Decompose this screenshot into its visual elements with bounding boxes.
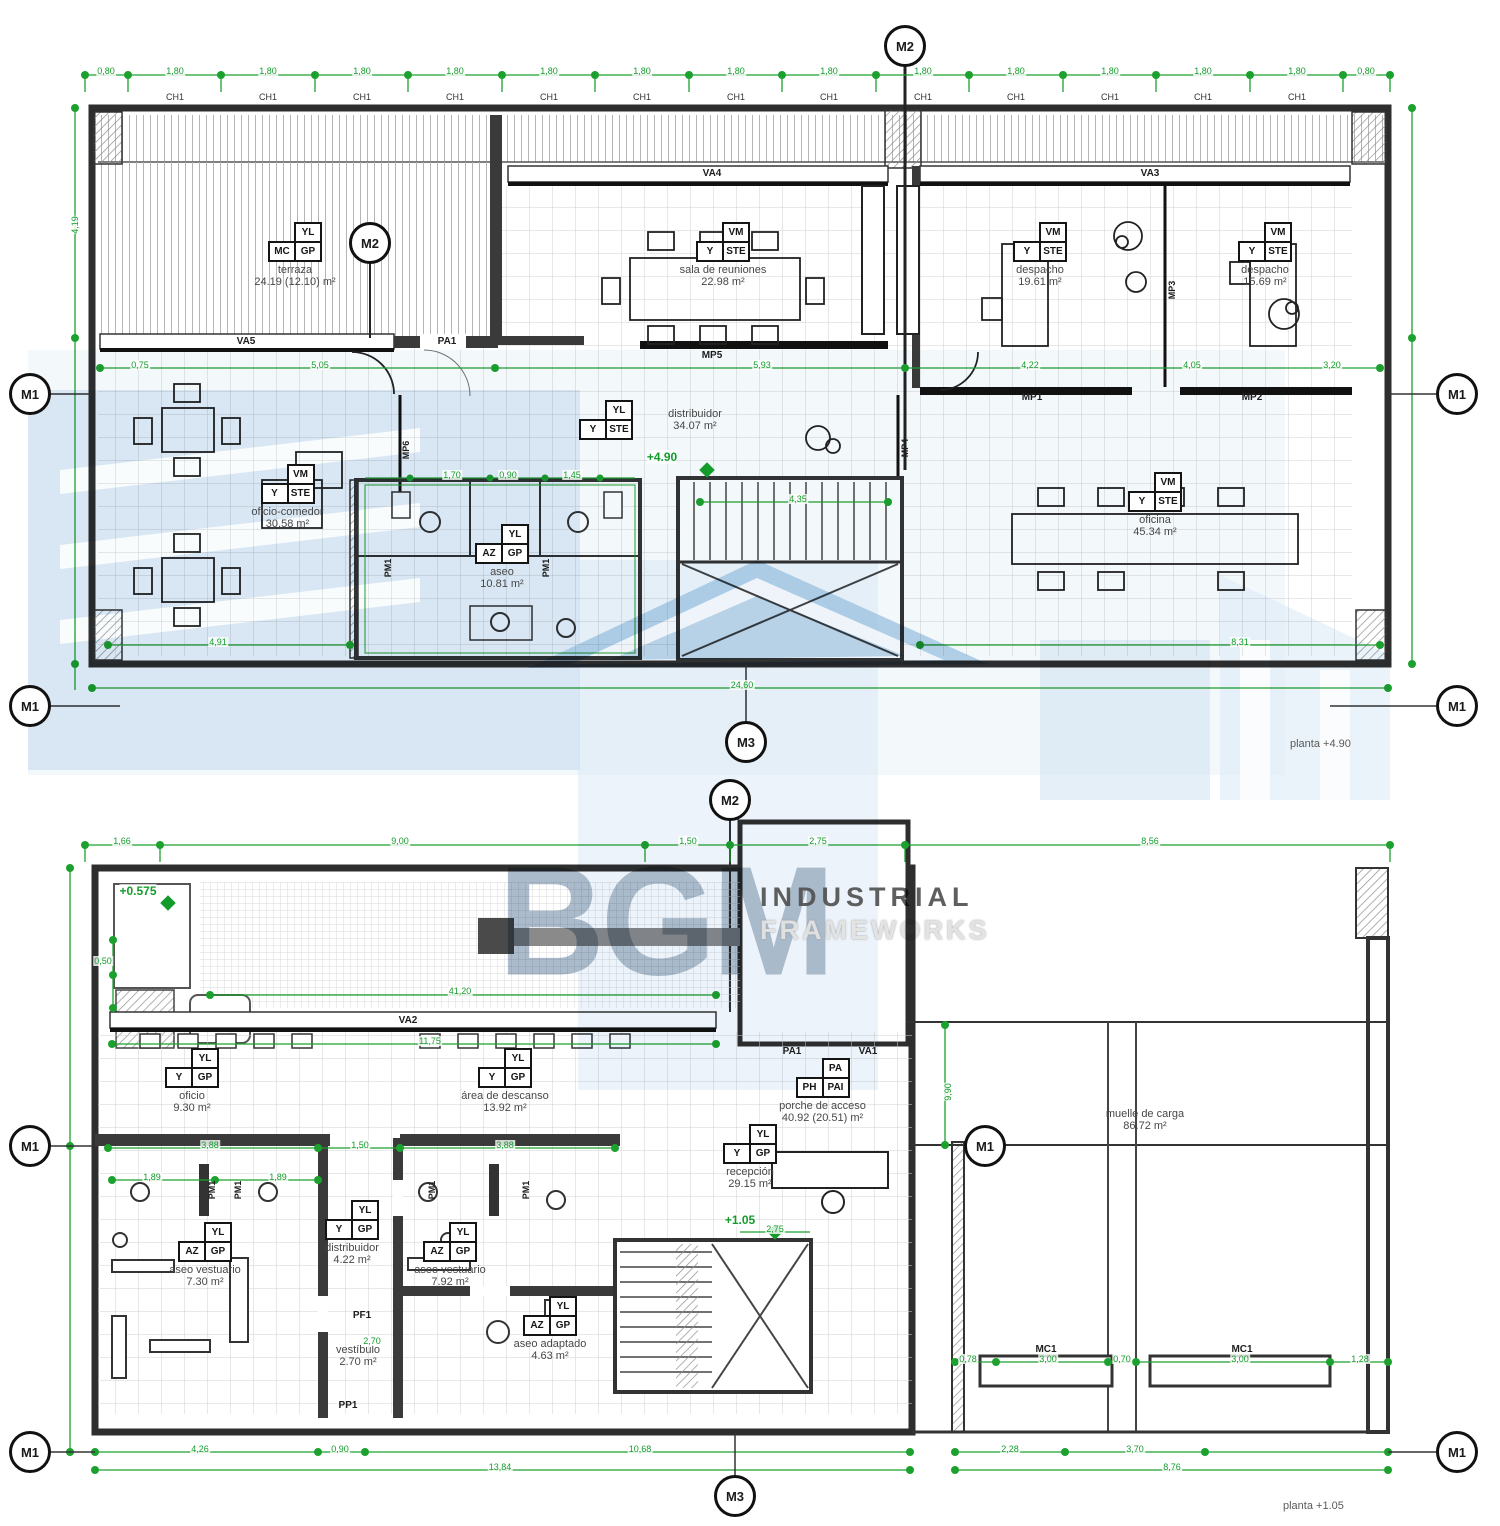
lintel-tag-ch1: CH1 [633,92,651,102]
grid-marker-m1: M1 [9,1431,51,1473]
finish-codes: YL AZ GP [475,524,529,564]
dimension-label: 1,50 [350,1140,370,1150]
window-tag-va1: VA1 [859,1046,878,1057]
finish-code: YL [504,1048,532,1069]
dimension-label: 4,35 [788,494,808,504]
finish-code: GP [501,543,529,564]
room-area: 30.58 m² [225,518,350,531]
finish-code: Y [165,1067,193,1088]
dimension-label: 2,28 [1000,1444,1020,1454]
dimension-label: 1,80 [1287,66,1307,76]
dimension-label: 9,00 [390,836,410,846]
level-marker-text: +0.575 [119,884,156,898]
finish-codes: VM Y STE [1013,222,1067,262]
window-band-va3 [920,166,1350,184]
room-name: despacho [985,264,1095,276]
finish-codes: YL AZ GP [178,1222,232,1262]
level-marker-text: +4.90 [647,450,677,464]
room-aseo: YL AZ GP aseo 10.81 m² [462,524,542,591]
room-name: vestíbulo [322,1344,394,1356]
grid-marker-m1: M1 [1436,685,1478,727]
room-distribuidor: distribuidor 34.07 m² [640,408,750,433]
finish-code: PAI [822,1077,850,1098]
partition-tag-mp1: MP1 [1022,392,1043,403]
room-area: 2.70 m² [322,1356,394,1369]
room-name: oficio-comedor [225,506,350,518]
room-area: 7.92 m² [395,1276,505,1289]
finish-code: AZ [523,1315,551,1336]
finish-code: Y [579,419,607,440]
finish-code: Y [325,1219,353,1240]
finish-code: STE [1039,241,1067,262]
finish-code: AZ [475,543,503,564]
finish-code: GP [549,1315,577,1336]
lintel-tag-ch1: CH1 [820,92,838,102]
door-tag-pm1: PM1 [383,559,393,578]
window-tag-va3: VA3 [1141,168,1160,179]
dimension-label: 8,56 [1140,836,1160,846]
room-area-de-descanso: YL Y GP área de descanso 13.92 m² [445,1048,565,1115]
door-tag-pa1: PA1 [783,1046,802,1057]
finish-code: YL [294,222,322,243]
grid-marker-m1: M1 [9,373,51,415]
dimension-label: 0,80 [1356,66,1376,76]
door-tag-pm1: PM1 [233,1181,243,1200]
lintel-tag-ch1: CH1 [353,92,371,102]
dimension-label: 3,88 [495,1140,515,1150]
window-band-va4 [508,166,888,184]
dimension-label: 0,80 [96,66,116,76]
room-area: 45.34 m² [1105,526,1205,539]
finish-codes: YL Y GP [325,1200,379,1240]
finish-code: STE [605,419,633,440]
door-tag-pa1: PA1 [438,336,457,347]
partition-tag-mp2: MP2 [1242,392,1263,403]
dimension-label: 1,80 [913,66,933,76]
door-tag-pf1: PF1 [353,1310,371,1321]
room-name: distribuidor [640,408,750,420]
dimension-label: 3,70 [1125,1444,1145,1454]
finish-codes: VM Y STE [1238,222,1292,262]
finish-code: GP [449,1241,477,1262]
room-name: distribuidor [312,1242,392,1254]
finish-code: Y [478,1067,506,1088]
room-area: 4.63 m² [495,1350,605,1363]
finish-code: YL [449,1222,477,1243]
door-tag-pm1: PM1 [427,1181,437,1200]
finish-code: Y [1013,241,1041,262]
finish-code: MC [268,241,296,262]
room-name: terraza [240,264,350,276]
grid-marker-m3: M3 [714,1475,756,1517]
finish-codes: YL Y STE [579,400,633,440]
dimension-label: 0,75 [130,360,150,370]
finish-code: YL [191,1048,219,1069]
room-name: aseo [462,566,542,578]
dimension-label: 1,50 [678,836,698,846]
room-aseo-adaptado: YL AZ GP aseo adaptado 4.63 m² [495,1296,605,1363]
dimension-label: 0,70 [1112,1354,1132,1364]
dimension-label: 3,00 [1230,1354,1250,1364]
room-name: área de descanso [445,1090,565,1102]
door-tag-pm1: PM1 [521,1181,531,1200]
grid-marker-m1: M1 [1436,1431,1478,1473]
room-aseo-vestuario-1: YL AZ GP aseo vestuario 7.30 m² [150,1222,260,1289]
grid-marker-m1: M1 [1436,373,1478,415]
dimension-label: 8,31 [1230,637,1250,647]
dimension-label: 5,05 [310,360,330,370]
upper-plan [48,64,1440,724]
room-name: porche de acceso [755,1100,890,1112]
dimension-label: 1,80 [726,66,746,76]
dimension-label: 0,90 [498,470,518,480]
room-area: 15.69 m² [1210,276,1320,289]
dimension-label: 1,89 [142,1172,162,1182]
finish-code: YL [501,524,529,545]
dimension-label: 1,80 [539,66,559,76]
finish-code: GP [749,1143,777,1164]
grid-marker-m1: M1 [9,685,51,727]
dimension-label: 2,75 [808,836,828,846]
room-terraza: YL MC GP terraza 24.19 (12.10) m² [240,222,350,289]
lintel-tag-ch1: CH1 [1194,92,1212,102]
finish-code: VM [1264,222,1292,243]
finish-code: PA [822,1058,850,1079]
room-area: 19.61 m² [985,276,1095,289]
room-aseo-vestuario-2: YL AZ GP aseo vestuario 7.92 m² [395,1222,505,1289]
room-oficio-comedor: VM Y STE oficio-comedor 30.58 m² [225,464,350,531]
room-oficio: YL Y GP oficio 9.30 m² [152,1048,232,1115]
dimension-label: 1,80 [632,66,652,76]
dimension-label: 10,68 [628,1444,653,1454]
dimension-label: 1,80 [1100,66,1120,76]
dimension-label: 9,90 [943,1083,953,1101]
dimension-label: 1,80 [445,66,465,76]
finish-code: AZ [423,1241,451,1262]
room-area: 13.92 m² [445,1102,565,1115]
dimension-label: 1,80 [258,66,278,76]
room-name: aseo vestuario [395,1264,505,1276]
dimension-label: 1,45 [562,470,582,480]
lintel-tag-ch1: CH1 [1007,92,1025,102]
dimension-label: 1,80 [1006,66,1026,76]
room-area: 24.19 (12.10) m² [240,276,350,289]
finish-code: YL [549,1296,577,1317]
room-name: recepción [700,1166,800,1178]
finish-codes: VM Y STE [696,222,750,262]
finish-code: Y [723,1143,751,1164]
finish-code: STE [1264,241,1292,262]
dimension-label: 1,89 [268,1172,288,1182]
dimension-label: 0,90 [330,1444,350,1454]
finish-code: STE [287,483,315,504]
partition-tag-mp3: MP3 [1167,281,1177,300]
plan-caption-lower: planta +1.05 [1283,1500,1344,1512]
finish-code: VM [1154,472,1182,493]
window-tag-va5: VA5 [237,336,256,347]
dimension-label: 24,60 [730,680,755,690]
dimension-label: 1,80 [1193,66,1213,76]
room-distribuidor-lower: YL Y GP distribuidor 4.22 m² [312,1200,392,1267]
room-distribuidor-codes: YL Y STE [578,400,634,442]
dimension-label: 1,66 [112,836,132,846]
finish-code: Y [696,241,724,262]
room-name: despacho [1210,264,1320,276]
room-name: sala de reuniones [648,264,798,276]
finish-code: GP [351,1219,379,1240]
room-area: 22.98 m² [648,276,798,289]
dimension-label: 1,80 [819,66,839,76]
dimension-label: 0,78 [958,1354,978,1364]
partition-tag-mp6: MP6 [401,441,411,460]
dimension-label: 4,19 [70,216,80,234]
finish-code: GP [294,241,322,262]
stairs-lower [615,1240,811,1392]
dimension-label: 1,70 [442,470,462,480]
grid-marker-m2: M2 [349,222,391,264]
finish-code: VM [1039,222,1067,243]
room-name: muelle de carga [1070,1108,1220,1120]
room-vestibulo: vestíbulo 2.70 m² [322,1344,394,1369]
room-area: 29.15 m² [700,1178,800,1191]
dimension-label: 2,70 [362,1336,382,1346]
lintel-tag-ch1: CH1 [259,92,277,102]
room-name: oficio [152,1090,232,1102]
finish-code: YL [351,1200,379,1221]
lintel-tag-ch1: CH1 [914,92,932,102]
partition-tag-mp4: MP4 [900,439,910,458]
grid-marker-m1: M1 [964,1125,1006,1167]
dimension-label: 3,20 [1322,360,1342,370]
room-name: aseo vestuario [150,1264,260,1276]
room-area: 34.07 m² [640,420,750,433]
lintel-tag-ch1: CH1 [1288,92,1306,102]
dimension-label: 4,91 [208,637,228,647]
level-marker-text: +1.05 [725,1213,755,1227]
lintel-tag-ch1: CH1 [540,92,558,102]
dimension-label: 1,28 [1350,1354,1370,1364]
room-muelle-de-carga: muelle de carga 86.72 m² [1070,1108,1220,1133]
room-area: 86.72 m² [1070,1120,1220,1133]
room-name: oficina [1105,514,1205,526]
finish-codes: YL AZ GP [423,1222,477,1262]
dimension-label: 3,88 [200,1140,220,1150]
partition-tag-mp5: MP5 [702,350,723,361]
finish-code: STE [722,241,750,262]
window-tag-va4: VA4 [703,168,722,179]
floor-plan-sheet: BGM INDUSTRIAL FRAMEWORKS 0,80 1,80 1,80… [0,0,1500,1526]
room-recepcion: YL Y GP recepción 29.15 m² [700,1124,800,1191]
finish-codes: YL Y GP [478,1048,532,1088]
finish-code: PH [796,1077,824,1098]
stairs-upper [678,478,902,660]
finish-code: GP [504,1067,532,1088]
finish-code: GP [191,1067,219,1088]
dimension-label: 4,22 [1020,360,1040,370]
finish-codes: VM Y STE [261,464,315,504]
room-area: 7.30 m² [150,1276,260,1289]
finish-codes: VM Y STE [1128,472,1182,512]
finish-codes: YL MC GP [268,222,322,262]
dimension-label: 11,75 [418,1036,442,1046]
room-area: 10.81 m² [462,578,542,591]
finish-codes: YL AZ GP [523,1296,577,1336]
finish-code: Y [1238,241,1266,262]
finish-code: Y [1128,491,1156,512]
finish-code: YL [749,1124,777,1145]
door-tag-pm1: PM1 [541,559,551,578]
finish-code: VM [722,222,750,243]
dimension-label: 13,84 [488,1462,513,1472]
finish-code: STE [1154,491,1182,512]
room-porche-de-acceso: PA PH PAI porche de acceso 40.92 (20.51)… [755,1058,890,1125]
room-name: aseo adaptado [495,1338,605,1350]
plan-caption-upper: planta +4.90 [1290,738,1351,750]
dimension-label: 1,80 [165,66,185,76]
lintel-tag-ch1: CH1 [727,92,745,102]
grid-marker-m1: M1 [9,1125,51,1167]
grid-marker-m2: M2 [884,25,926,67]
finish-code: GP [204,1241,232,1262]
finish-codes: YL Y GP [723,1124,777,1164]
grid-marker-m2: M2 [709,779,751,821]
finish-code: AZ [178,1241,206,1262]
lintel-tag-ch1: CH1 [166,92,184,102]
dimension-label: 4,26 [190,1444,210,1454]
room-area: 9.30 m² [152,1102,232,1115]
finish-code: YL [605,400,633,421]
finish-codes: PA PH PAI [796,1058,850,1098]
finish-code: YL [204,1222,232,1243]
grid-marker-m3: M3 [725,721,767,763]
finish-code: VM [287,464,315,485]
dimension-label: 1,80 [352,66,372,76]
room-despacho-2: VM Y STE despacho 15.69 m² [1210,222,1320,289]
lintel-tag-ch1: CH1 [1101,92,1119,102]
finish-codes: YL Y GP [165,1048,219,1088]
room-sala-de-reuniones: VM Y STE sala de reuniones 22.98 m² [648,222,798,289]
dimension-label: 2,75 [765,1224,785,1234]
room-oficina: VM Y STE oficina 45.34 m² [1105,472,1205,539]
dimension-label: 3,00 [1038,1354,1058,1364]
dimension-label: 8,76 [1162,1462,1182,1472]
dimension-label: 5,93 [752,360,772,370]
window-tag-va2: VA2 [399,1015,418,1026]
dimension-label: 41,20 [448,986,473,996]
door-tag-pp1: PP1 [339,1400,358,1411]
door-tag-pm1: PM1 [207,1181,217,1200]
room-area: 4.22 m² [312,1254,392,1267]
finish-code: Y [261,483,289,504]
lintel-tag-ch1: CH1 [446,92,464,102]
dimension-label: 0,50 [93,956,113,966]
room-despacho-1: VM Y STE despacho 19.61 m² [985,222,1095,289]
dimension-label: 4,05 [1182,360,1202,370]
